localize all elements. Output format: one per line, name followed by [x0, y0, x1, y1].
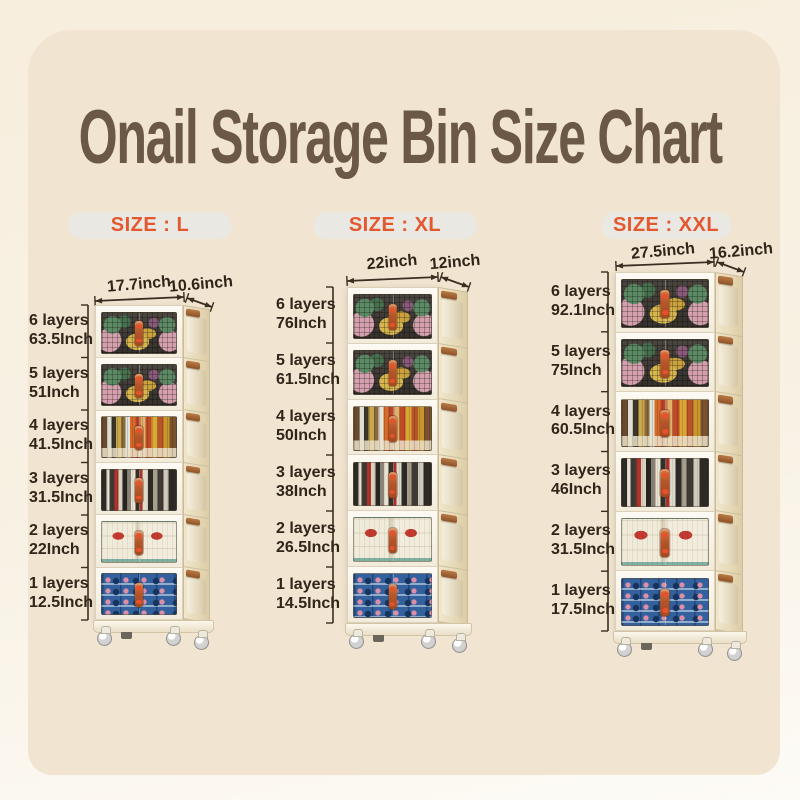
arrow-head	[177, 295, 184, 301]
measure-overlay	[0, 0, 800, 800]
width-arrow	[616, 262, 714, 266]
arrow-head	[95, 298, 102, 304]
arrow-head	[441, 277, 449, 282]
arrow-head	[347, 278, 354, 284]
width-arrow	[347, 277, 438, 281]
size-chart: Onail Storage Bin Size Chart SIZE : L17.…	[0, 0, 800, 800]
arrow-head	[707, 259, 714, 265]
arrow-head	[187, 298, 195, 303]
arrow-head	[717, 262, 725, 267]
width-arrow	[95, 297, 184, 301]
arrow-head	[736, 267, 744, 272]
arrow-head	[204, 302, 212, 307]
arrow-head	[461, 282, 469, 287]
arrow-head	[431, 275, 438, 281]
arrow-head	[616, 263, 623, 269]
